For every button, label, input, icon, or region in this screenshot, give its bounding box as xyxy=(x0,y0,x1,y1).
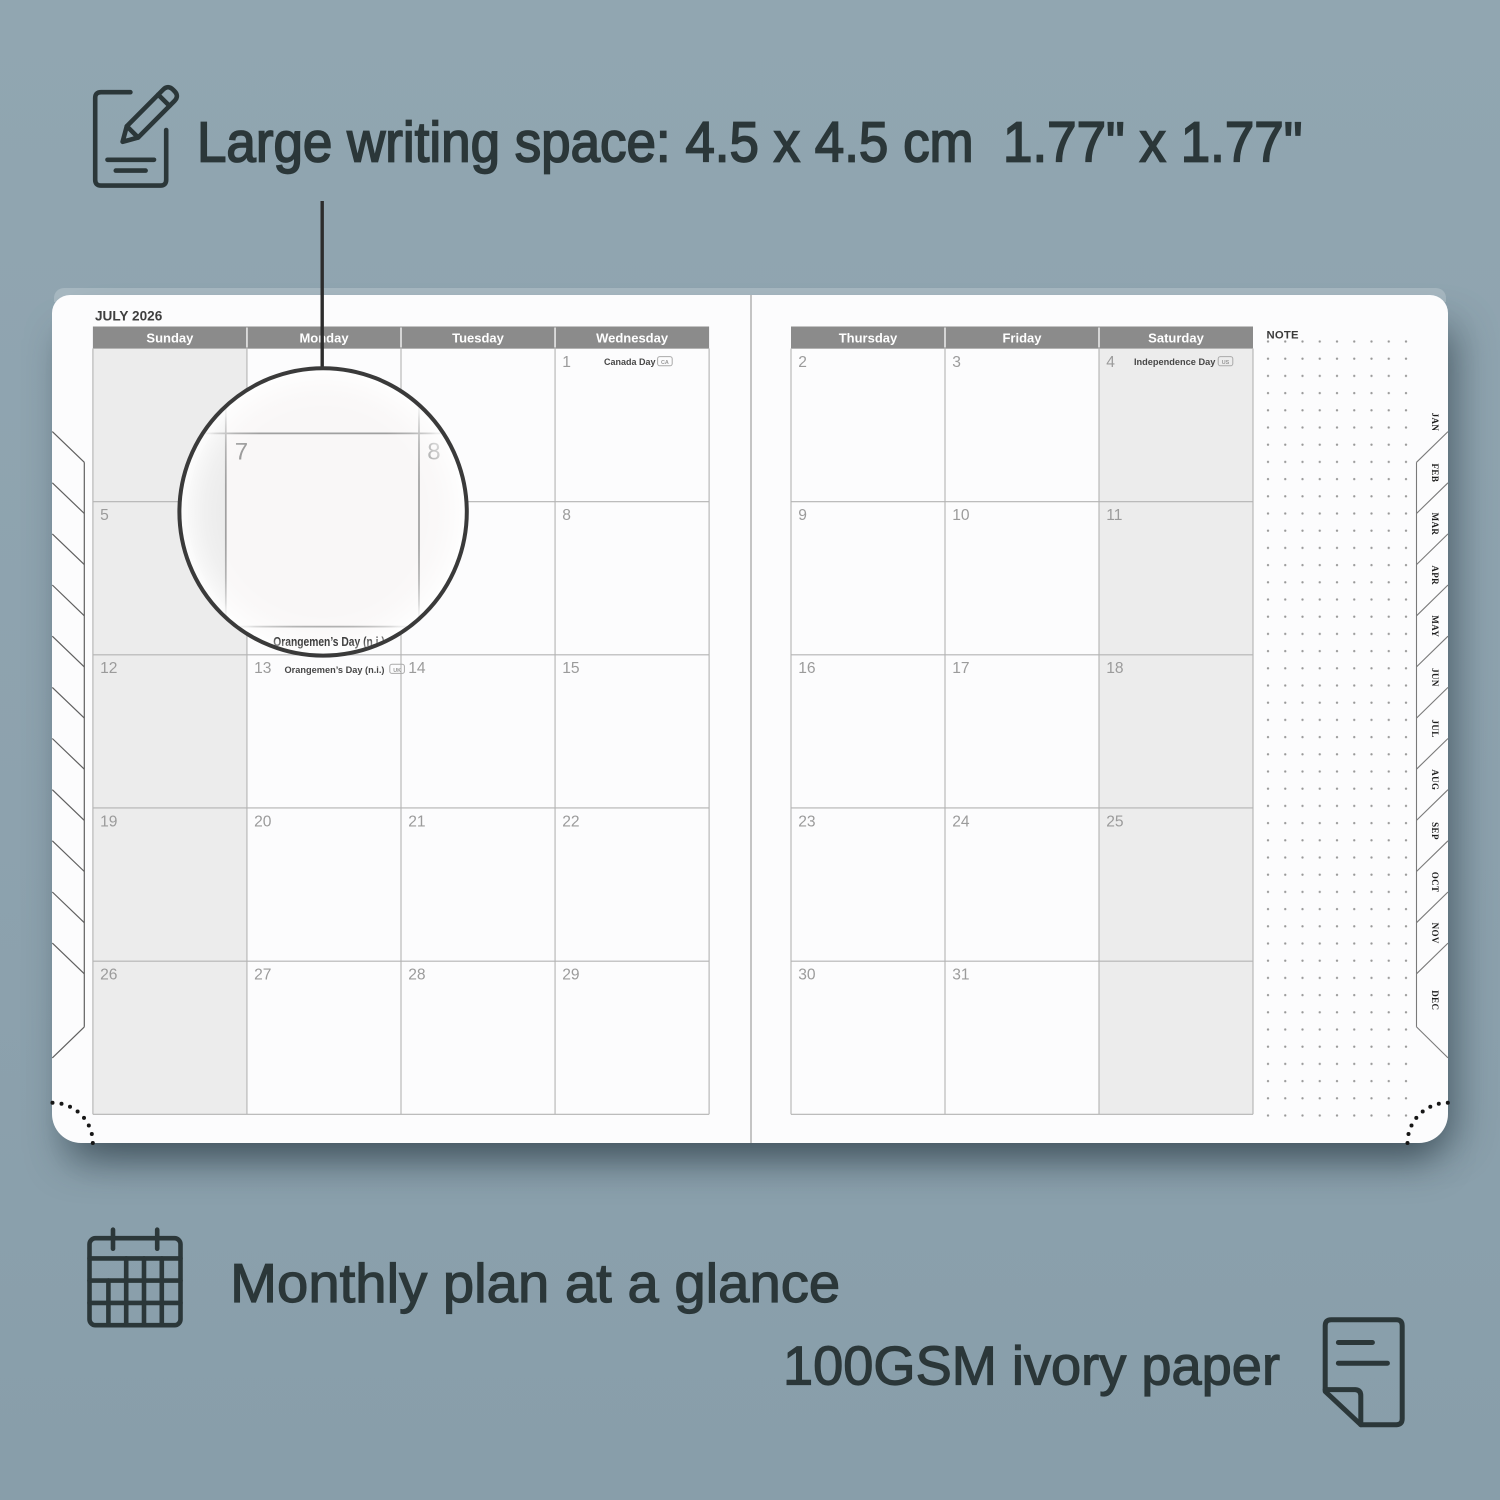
svg-text:UK: UK xyxy=(393,668,401,674)
svg-text:30: 30 xyxy=(798,966,816,983)
svg-text:OCT: OCT xyxy=(1430,872,1440,893)
svg-text:2: 2 xyxy=(798,354,807,371)
svg-text:18: 18 xyxy=(1106,660,1123,677)
svg-text:APR: APR xyxy=(1430,565,1440,585)
svg-text:4: 4 xyxy=(1106,354,1115,371)
svg-text:17: 17 xyxy=(952,660,969,677)
svg-text:JUL: JUL xyxy=(1430,719,1440,737)
svg-text:SEP: SEP xyxy=(1430,822,1440,840)
svg-text:CA: CA xyxy=(661,360,669,366)
svg-text:Independence Day: Independence Day xyxy=(1134,357,1216,368)
svg-text:Friday: Friday xyxy=(1002,331,1042,346)
svg-text:21: 21 xyxy=(408,813,425,830)
svg-text:23: 23 xyxy=(798,813,815,830)
svg-text:DEC: DEC xyxy=(1430,990,1440,1010)
svg-text:JUN: JUN xyxy=(1430,668,1440,687)
svg-text:9: 9 xyxy=(798,507,807,524)
svg-text:FEB: FEB xyxy=(1430,464,1440,483)
svg-text:16: 16 xyxy=(798,660,815,677)
svg-text:Tuesday: Tuesday xyxy=(452,331,505,346)
svg-text:JULY 2026: JULY 2026 xyxy=(95,308,163,323)
svg-text:US: US xyxy=(1222,360,1230,366)
svg-text:Wednesday: Wednesday xyxy=(596,331,669,346)
svg-text:MAR: MAR xyxy=(1430,513,1440,536)
svg-text:28: 28 xyxy=(408,966,425,983)
svg-text:3: 3 xyxy=(952,354,961,371)
svg-text:Monday: Monday xyxy=(299,331,349,346)
svg-text:19: 19 xyxy=(100,813,117,830)
svg-text:13: 13 xyxy=(254,660,271,677)
svg-text:AUG: AUG xyxy=(1430,769,1440,790)
svg-text:14: 14 xyxy=(408,660,426,677)
svg-text:100GSM ivory paper: 100GSM ivory paper xyxy=(783,1335,1280,1396)
svg-text:Large writing space: 4.5 x 4.5: Large writing space: 4.5 x 4.5 cm 1.77" … xyxy=(197,111,1303,175)
svg-text:8: 8 xyxy=(562,507,571,524)
svg-text:20: 20 xyxy=(254,813,272,830)
svg-text:Canada Day: Canada Day xyxy=(604,357,656,368)
svg-text:12: 12 xyxy=(100,660,117,677)
svg-text:31: 31 xyxy=(952,966,969,983)
svg-text:5: 5 xyxy=(100,507,109,524)
svg-text:26: 26 xyxy=(100,966,117,983)
svg-text:NOV: NOV xyxy=(1430,923,1440,944)
svg-text:Monthly plan at a glance: Monthly plan at a glance xyxy=(230,1252,840,1314)
svg-text:11: 11 xyxy=(1106,507,1122,524)
svg-text:10: 10 xyxy=(952,507,970,524)
svg-text:Thursday: Thursday xyxy=(839,331,898,346)
svg-text:25: 25 xyxy=(1106,813,1124,830)
svg-text:MAY: MAY xyxy=(1430,615,1440,637)
svg-text:15: 15 xyxy=(562,660,580,677)
svg-text:27: 27 xyxy=(254,966,271,983)
svg-text:Sunday: Sunday xyxy=(146,331,194,346)
svg-text:NOTE: NOTE xyxy=(1267,330,1299,342)
svg-text:29: 29 xyxy=(562,966,579,983)
svg-text:24: 24 xyxy=(952,813,970,830)
svg-text:1: 1 xyxy=(562,354,571,371)
svg-text:JAN: JAN xyxy=(1430,413,1440,432)
svg-text:Orangemen’s Day (n.i.): Orangemen’s Day (n.i.) xyxy=(285,665,385,676)
svg-text:22: 22 xyxy=(562,813,579,830)
svg-text:Saturday: Saturday xyxy=(1148,331,1204,346)
